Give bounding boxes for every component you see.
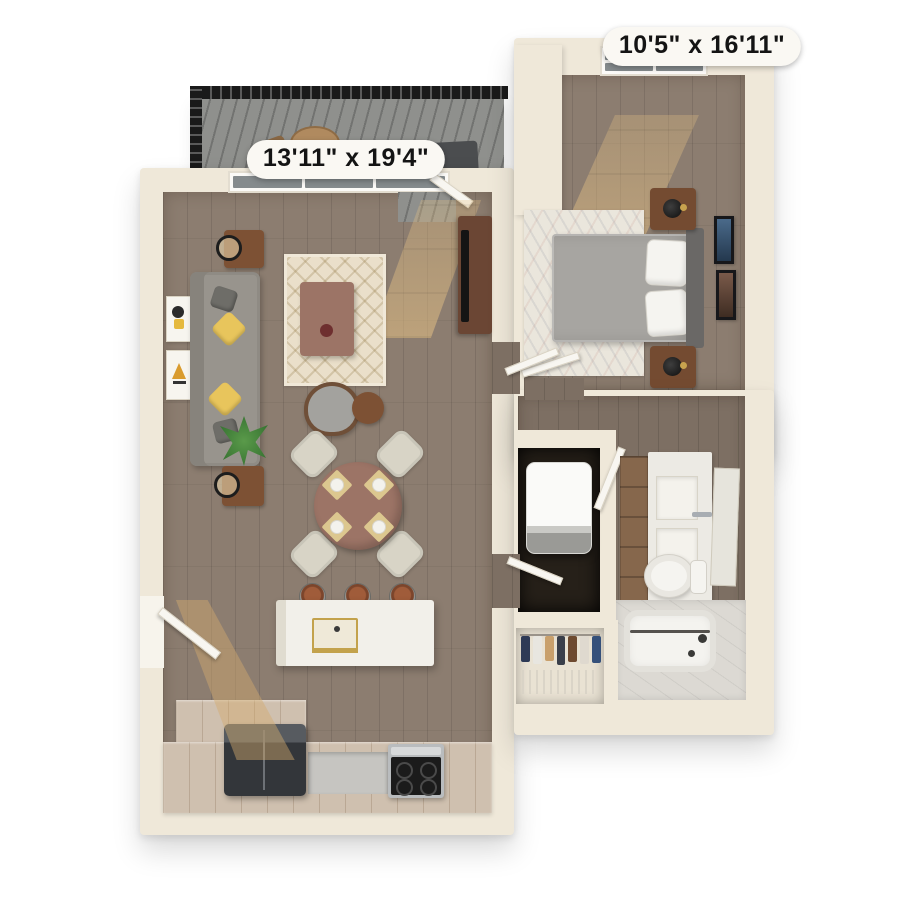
living-dining-dimensions-label: 13'11" x 19'4" xyxy=(247,140,445,179)
nightstand xyxy=(650,346,696,388)
hanging-clothes xyxy=(521,636,601,666)
tub-handle xyxy=(688,650,695,657)
island-sink xyxy=(312,618,358,650)
balcony-railing-top xyxy=(190,86,508,99)
entry-doorway xyxy=(140,596,164,668)
leaning-mirror xyxy=(710,468,740,587)
bedroom-doorway xyxy=(524,378,584,400)
wall-frame xyxy=(714,216,734,264)
wall-art xyxy=(166,350,192,400)
washer-dryer xyxy=(526,462,592,554)
wall-art xyxy=(166,296,192,342)
side-table xyxy=(352,392,384,424)
tub-rod xyxy=(630,630,710,633)
closet-wall xyxy=(604,620,618,704)
range xyxy=(388,744,444,798)
bed-pillow xyxy=(645,239,689,287)
tv xyxy=(461,230,469,322)
dining-table xyxy=(314,462,402,550)
floorplan: 10'5" x 16'11" 13'11" x 19'4" xyxy=(0,0,900,900)
end-table xyxy=(222,466,264,506)
headboard xyxy=(686,228,704,348)
wire-shelf xyxy=(522,670,598,694)
coffee-table xyxy=(300,282,354,356)
end-table xyxy=(224,230,264,268)
closet-wall xyxy=(514,612,616,628)
bed-pillow xyxy=(644,289,689,338)
nightstand xyxy=(650,188,696,230)
vanity-faucet xyxy=(692,512,712,517)
toilet-bowl xyxy=(644,554,694,598)
wall-frame xyxy=(716,270,736,320)
tub-faucet xyxy=(698,634,707,643)
counter-recess xyxy=(308,752,388,794)
vanity-cabinet xyxy=(620,456,648,608)
toilet-tank xyxy=(690,560,707,594)
bedroom-corner-wall xyxy=(514,45,562,215)
balcony-railing-left xyxy=(190,86,202,172)
bedroom-dimensions-label: 10'5" x 16'11" xyxy=(603,27,801,66)
